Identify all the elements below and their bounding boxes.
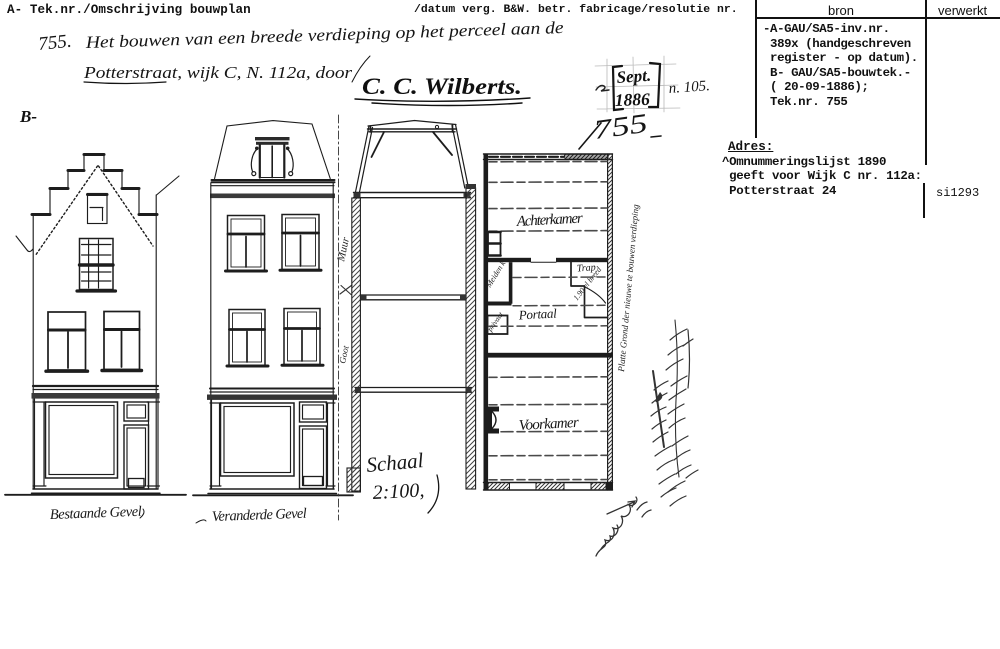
svg-text:Bestaande Gevel: Bestaande Gevel [50,504,143,523]
svg-text:Veranderde Gevel: Veranderde Gevel [212,506,308,525]
svg-text:755.: 755. [37,31,72,55]
svg-text:Potterstraat, wijk C, N. 112a,: Potterstraat, wijk C, N. 112a, door [83,63,353,82]
svg-text:Sept.: Sept. [616,66,652,87]
svg-text:Portaal: Portaal [517,306,557,323]
svg-text:Het bouwen van een breede verd: Het bouwen van een breede verdieping op … [84,18,564,52]
svg-text:Voorkamer: Voorkamer [518,415,579,434]
svg-text:2:100,: 2:100, [372,479,425,504]
svg-text:Goot: Goot [337,344,351,364]
svg-text:Platte Grond der nieuwe te bou: Platte Grond der nieuwe te bouwen verdie… [616,203,641,373]
svg-text:755: 755 [592,108,650,145]
svg-text:n. 105.: n. 105. [668,78,710,97]
svg-text:Schaal: Schaal [365,448,424,477]
svg-text:C. C. Wilberts.: C. C. Wilberts. [362,74,522,99]
svg-text:Muur: Muur [335,236,352,264]
svg-text:Achterkamer: Achterkamer [515,211,583,230]
